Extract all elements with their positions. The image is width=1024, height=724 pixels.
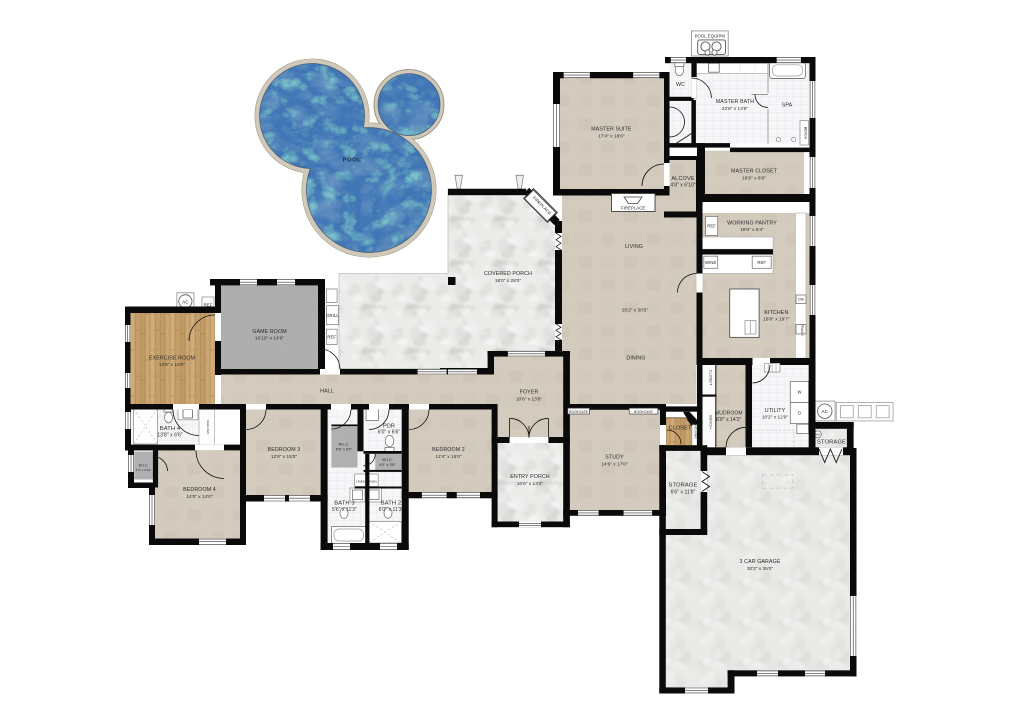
svg-text:HALL: HALL (320, 389, 334, 395)
svg-text:REF: REF (204, 303, 213, 308)
svg-text:SHELVES: SHELVES (206, 420, 210, 434)
svg-text:FOYER: FOYER (520, 390, 539, 396)
svg-text:13'8" x 6'6": 13'8" x 6'6" (157, 433, 182, 439)
svg-text:BATH 3: BATH 3 (334, 501, 354, 507)
svg-text:D: D (798, 411, 801, 416)
svg-text:14'6" x 17'0": 14'6" x 17'0" (601, 462, 628, 467)
svg-text:MASTER BATH: MASTER BATH (716, 99, 754, 105)
svg-text:REF: REF (327, 335, 336, 340)
svg-text:MUDROOM: MUDROOM (715, 411, 743, 417)
svg-text:DINING: DINING (626, 356, 645, 362)
svg-text:13'8" x 14'0": 13'8" x 14'0" (159, 362, 186, 367)
svg-text:5'6" x 8'0": 5'6" x 8'0" (336, 448, 353, 452)
svg-text:6'0" x 3'8": 6'0" x 3'8" (379, 463, 396, 467)
svg-text:AC: AC (182, 299, 189, 304)
svg-text:ENTRY PORCH: ENTRY PORCH (510, 474, 550, 480)
svg-text:CLOSET: CLOSET (669, 426, 692, 432)
svg-text:17'4" x 18'0": 17'4" x 18'0" (598, 134, 625, 139)
svg-text:3 CAR GARAGE: 3 CAR GARAGE (740, 559, 781, 565)
svg-text:BENCH: BENCH (708, 415, 712, 429)
svg-text:BENCH: BENCH (803, 127, 807, 140)
svg-text:BATH 2: BATH 2 (381, 501, 401, 507)
svg-text:BEDROOM 4: BEDROOM 4 (183, 487, 216, 493)
svg-text:GRILL: GRILL (326, 313, 339, 318)
svg-text:WINE: WINE (705, 260, 716, 265)
svg-text:4'8" x 6'10": 4'8" x 6'10" (670, 183, 695, 189)
svg-text:STORAGE: STORAGE (669, 483, 698, 489)
svg-text:LINEN: LINEN (356, 480, 365, 484)
svg-text:22'8" x 13'6": 22'8" x 13'6" (722, 106, 749, 111)
svg-text:BOOKCASE: BOOKCASE (569, 410, 588, 414)
svg-text:REF: REF (757, 260, 766, 265)
svg-text:UTILITY: UTILITY (765, 408, 786, 414)
svg-text:18'8" x 8'8": 18'8" x 8'8" (742, 176, 766, 181)
svg-text:LIVING: LIVING (625, 244, 643, 250)
svg-text:W.I.C.: W.I.C. (382, 458, 393, 462)
svg-text:30'2" x 35'0": 30'2" x 35'0" (747, 566, 774, 571)
svg-text:STUDY: STUDY (605, 455, 624, 461)
svg-text:EXERCISE ROOM: EXERCISE ROOM (149, 356, 195, 362)
svg-text:12'4" x 15'0": 12'4" x 15'0" (435, 454, 462, 459)
svg-text:6'6" x 11'8": 6'6" x 11'8" (671, 490, 696, 496)
svg-text:10'2" x 12'0": 10'2" x 12'0" (762, 415, 789, 420)
svg-text:W.I.C.: W.I.C. (339, 443, 350, 447)
svg-text:LINEN: LINEN (368, 480, 377, 484)
svg-text:WORKING PANTRY: WORKING PANTRY (727, 221, 777, 227)
svg-text:SPA: SPA (782, 103, 793, 109)
svg-text:CLOSET: CLOSET (709, 370, 713, 386)
svg-text:POOL EQUIPM: POOL EQUIPM (695, 34, 726, 39)
svg-text:10'6" x 13'6": 10'6" x 13'6" (516, 397, 543, 402)
svg-text:ALCOVE: ALCOVE (671, 176, 694, 182)
svg-text:5'6" x 11'3": 5'6" x 11'3" (332, 507, 357, 513)
svg-text:MASTER SUITE: MASTER SUITE (591, 127, 632, 133)
svg-text:FIREPLACE: FIREPLACE (621, 206, 645, 211)
svg-text:W: W (797, 390, 801, 395)
svg-text:GAME ROOM: GAME ROOM (252, 329, 286, 335)
svg-text:4'4" x 6'10": 4'4" x 6'10" (136, 468, 152, 472)
svg-text:10'6" x 13'4": 10'6" x 13'4" (517, 481, 544, 486)
svg-text:6'0" x 6'6": 6'0" x 6'6" (378, 430, 401, 436)
svg-text:MASTER CLOSET: MASTER CLOSET (731, 169, 778, 175)
svg-text:6'8" x 14'2": 6'8" x 14'2" (716, 417, 741, 423)
svg-text:18'8" x 19'7": 18'8" x 19'7" (763, 317, 790, 322)
svg-text:BATH 4: BATH 4 (160, 426, 181, 432)
svg-text:BEDROOM 3: BEDROOM 3 (268, 447, 301, 453)
svg-text:WH: WH (816, 433, 821, 437)
svg-text:6'0" x 11'3": 6'0" x 11'3" (379, 507, 404, 513)
svg-text:STORAGE: STORAGE (817, 440, 846, 446)
svg-text:DW: DW (798, 298, 805, 302)
svg-text:18'0" x 28'0": 18'0" x 28'0" (495, 278, 522, 283)
svg-text:COVERED PORCH: COVERED PORCH (484, 271, 532, 277)
svg-text:SHELVING: SHELVING (694, 423, 698, 439)
svg-text:AC: AC (822, 409, 829, 414)
svg-text:BEDROOM 2: BEDROOM 2 (432, 447, 465, 453)
svg-text:12'8" x 15'0": 12'8" x 15'0" (271, 454, 298, 459)
svg-text:TRASH: TRASH (800, 324, 804, 336)
svg-text:16'10" x 14'6": 16'10" x 14'6" (255, 336, 284, 341)
svg-text:BOOKCASE: BOOKCASE (634, 410, 653, 414)
svg-text:WC: WC (676, 82, 685, 88)
svg-text:14'0" x 14'0": 14'0" x 14'0" (186, 494, 213, 499)
svg-text:KITCHEN: KITCHEN (764, 310, 788, 316)
svg-text:20'2" x 30'5": 20'2" x 30'5" (622, 308, 649, 313)
svg-text:18'8" x 6'4": 18'8" x 6'4" (740, 227, 764, 232)
svg-text:REF: REF (707, 224, 716, 229)
svg-text:W.I.C.: W.I.C. (139, 464, 149, 468)
svg-text:POOL: POOL (343, 158, 362, 164)
